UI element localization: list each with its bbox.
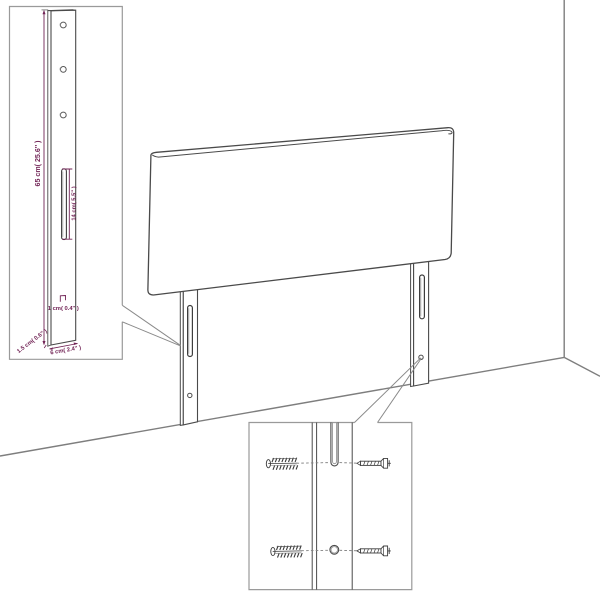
svg-text:14 cm( 5.5'' ): 14 cm( 5.5'' ) bbox=[72, 186, 78, 220]
svg-text:65 cm( 25.6'' ): 65 cm( 25.6'' ) bbox=[34, 140, 42, 187]
svg-text:1 cm( 0.4'' ): 1 cm( 0.4'' ) bbox=[48, 306, 79, 312]
